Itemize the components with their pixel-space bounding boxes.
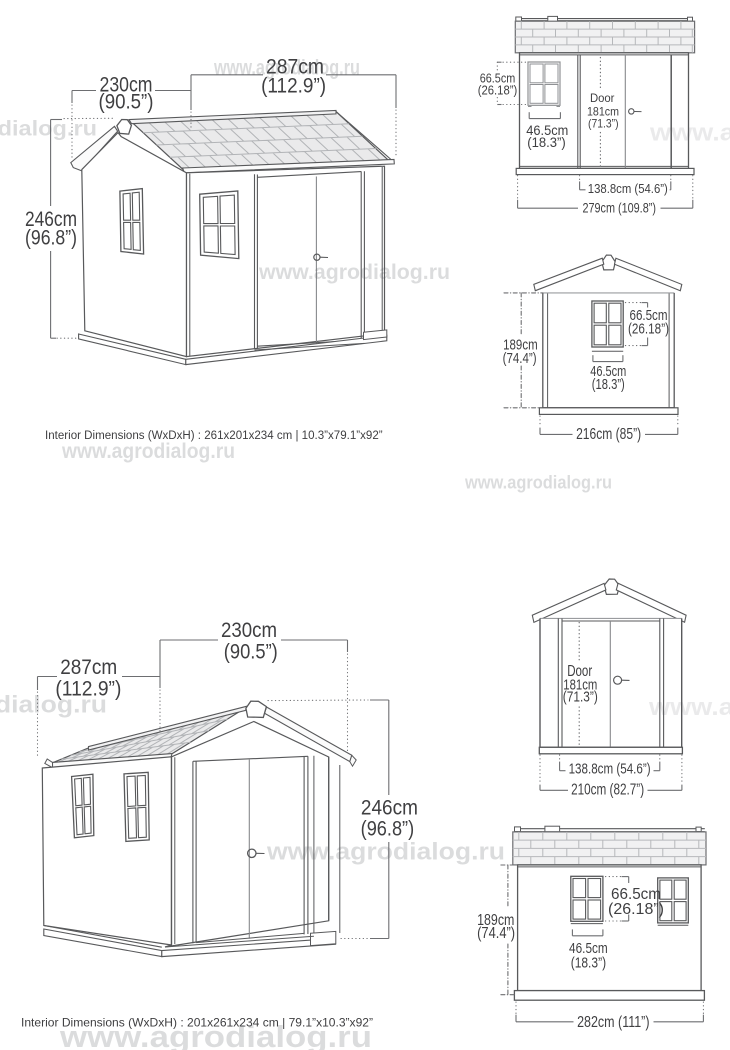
svg-text:246cm: 246cm bbox=[361, 796, 418, 819]
svg-text:(18.3”): (18.3”) bbox=[571, 955, 606, 971]
svg-text:(18.3”): (18.3”) bbox=[527, 134, 566, 150]
svg-text:www.agrodialog.ru: www.agrodialog.ru bbox=[0, 118, 97, 141]
svg-text:(96.8”): (96.8”) bbox=[361, 817, 415, 840]
svg-text:(74.4”): (74.4”) bbox=[477, 925, 515, 942]
svg-text:230cm: 230cm bbox=[221, 619, 277, 642]
svg-text:www.agrodialog.ru: www.agrodialog.ru bbox=[649, 120, 730, 147]
svg-text:287cm: 287cm bbox=[60, 656, 117, 679]
svg-text:138.8cm (54.6”): 138.8cm (54.6”) bbox=[588, 182, 668, 196]
svg-text:www.agrodialog.ru: www.agrodialog.ru bbox=[648, 694, 730, 721]
svg-text:210cm (82.7”): 210cm (82.7”) bbox=[571, 782, 644, 799]
svg-text:(26.18”): (26.18”) bbox=[628, 320, 669, 337]
svg-text:282cm (111”): 282cm (111”) bbox=[577, 1014, 649, 1031]
svg-text:www.agrodialog.ru: www.agrodialog.ru bbox=[213, 57, 360, 80]
svg-text:(71.3”): (71.3”) bbox=[563, 689, 598, 706]
svg-text:(96.8”): (96.8”) bbox=[25, 227, 77, 250]
svg-text:279cm (109.8”): 279cm (109.8”) bbox=[582, 199, 656, 215]
svg-text:Door: Door bbox=[590, 91, 615, 105]
svg-text:(90.5”): (90.5”) bbox=[224, 641, 278, 664]
svg-text:(74.4”): (74.4”) bbox=[503, 350, 537, 367]
svg-text:www.agrodialog.ru: www.agrodialog.ru bbox=[59, 1019, 372, 1050]
svg-text:(71.3”): (71.3”) bbox=[588, 117, 619, 131]
svg-text:www.agrodialog.ru: www.agrodialog.ru bbox=[61, 440, 235, 463]
svg-text:(90.5”): (90.5”) bbox=[99, 91, 154, 114]
svg-text:www.agrodialog.ru: www.agrodialog.ru bbox=[266, 839, 505, 866]
svg-text:216cm (85”): 216cm (85”) bbox=[576, 426, 641, 443]
svg-text:(26.18”): (26.18”) bbox=[608, 901, 664, 918]
svg-text:www.agrodialog.ru: www.agrodialog.ru bbox=[0, 692, 107, 719]
svg-text:(26.18”): (26.18”) bbox=[478, 83, 518, 98]
svg-text:www.agrodialog.ru: www.agrodialog.ru bbox=[258, 261, 450, 284]
svg-text:(18.3”): (18.3”) bbox=[592, 376, 625, 393]
svg-text:138.8cm (54.6”): 138.8cm (54.6”) bbox=[569, 762, 651, 778]
svg-text:www.agrodialog.ru: www.agrodialog.ru bbox=[464, 473, 612, 493]
